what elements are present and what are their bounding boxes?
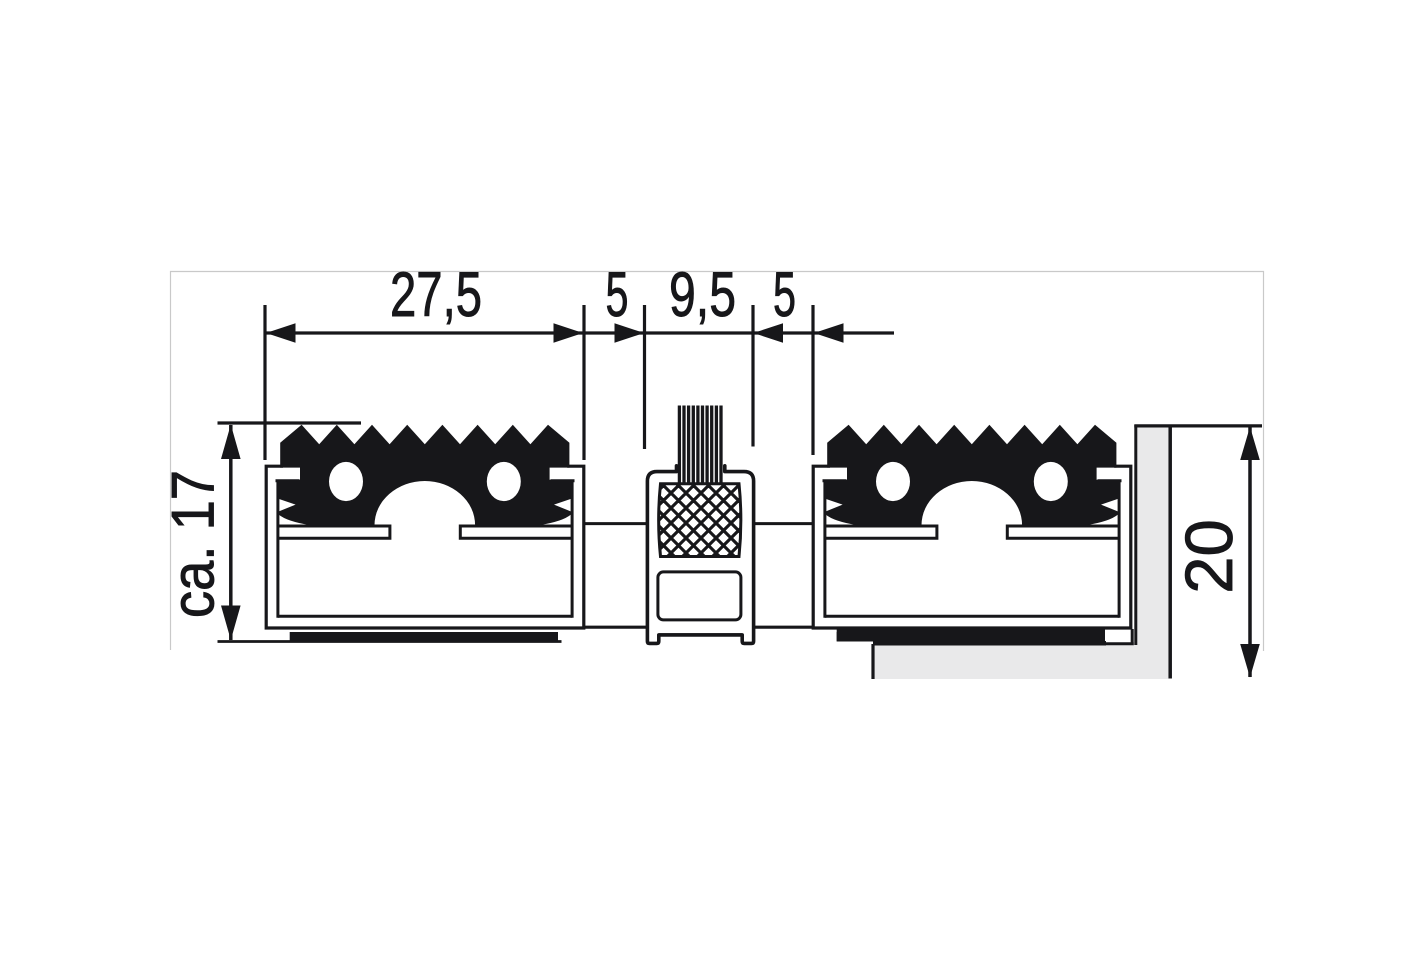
svg-text:5: 5 [606,260,629,330]
svg-text:27,5: 27,5 [390,260,482,330]
svg-text:9,5: 9,5 [669,260,736,330]
svg-text:ca. 17: ca. 17 [160,470,227,618]
svg-text:5: 5 [773,260,796,330]
svg-text:20: 20 [1172,519,1247,594]
